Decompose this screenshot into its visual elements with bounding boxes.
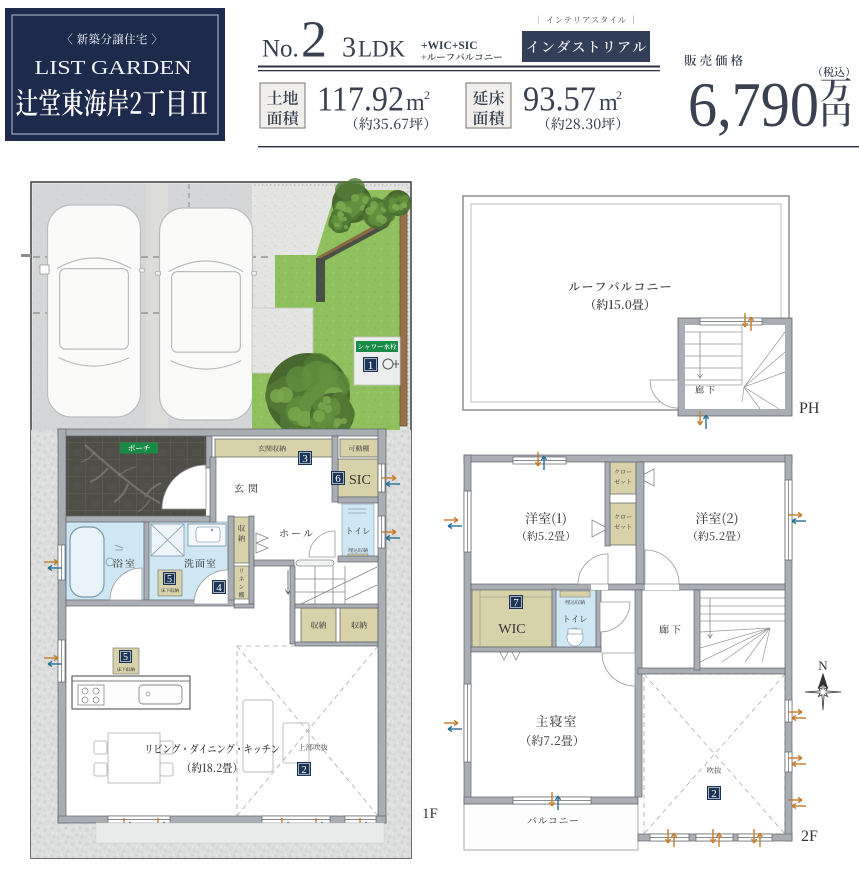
svg-text:N: N [818, 658, 828, 673]
svg-text:SIC: SIC [349, 473, 371, 488]
svg-text:5: 5 [123, 652, 128, 663]
svg-text:2: 2 [616, 88, 622, 102]
svg-text:5: 5 [167, 574, 172, 585]
svg-text:m: m [406, 90, 425, 116]
svg-text:+WIC+SIC: +WIC+SIC [421, 40, 478, 52]
svg-text:No.: No. [262, 36, 299, 63]
svg-text:1: 1 [368, 358, 374, 372]
svg-text:LDK: LDK [358, 37, 406, 62]
svg-text:3: 3 [302, 453, 308, 465]
svg-text:1F: 1F [422, 806, 438, 822]
svg-text:2: 2 [301, 764, 307, 776]
svg-text:PH: PH [799, 400, 820, 417]
svg-text:93.57: 93.57 [523, 80, 596, 119]
svg-text:WIC: WIC [498, 622, 525, 637]
svg-text:2: 2 [424, 88, 430, 102]
svg-text:2F: 2F [801, 828, 818, 845]
svg-text:6: 6 [335, 473, 341, 485]
svg-text:7: 7 [513, 597, 519, 609]
svg-text:LIST GARDEN: LIST GARDEN [35, 57, 192, 79]
svg-text:117.92: 117.92 [317, 80, 404, 119]
svg-text:3: 3 [342, 33, 356, 64]
svg-text:4: 4 [216, 582, 222, 594]
svg-text:6,790: 6,790 [688, 69, 819, 140]
svg-text:2: 2 [711, 788, 717, 800]
svg-text:2: 2 [301, 12, 327, 69]
